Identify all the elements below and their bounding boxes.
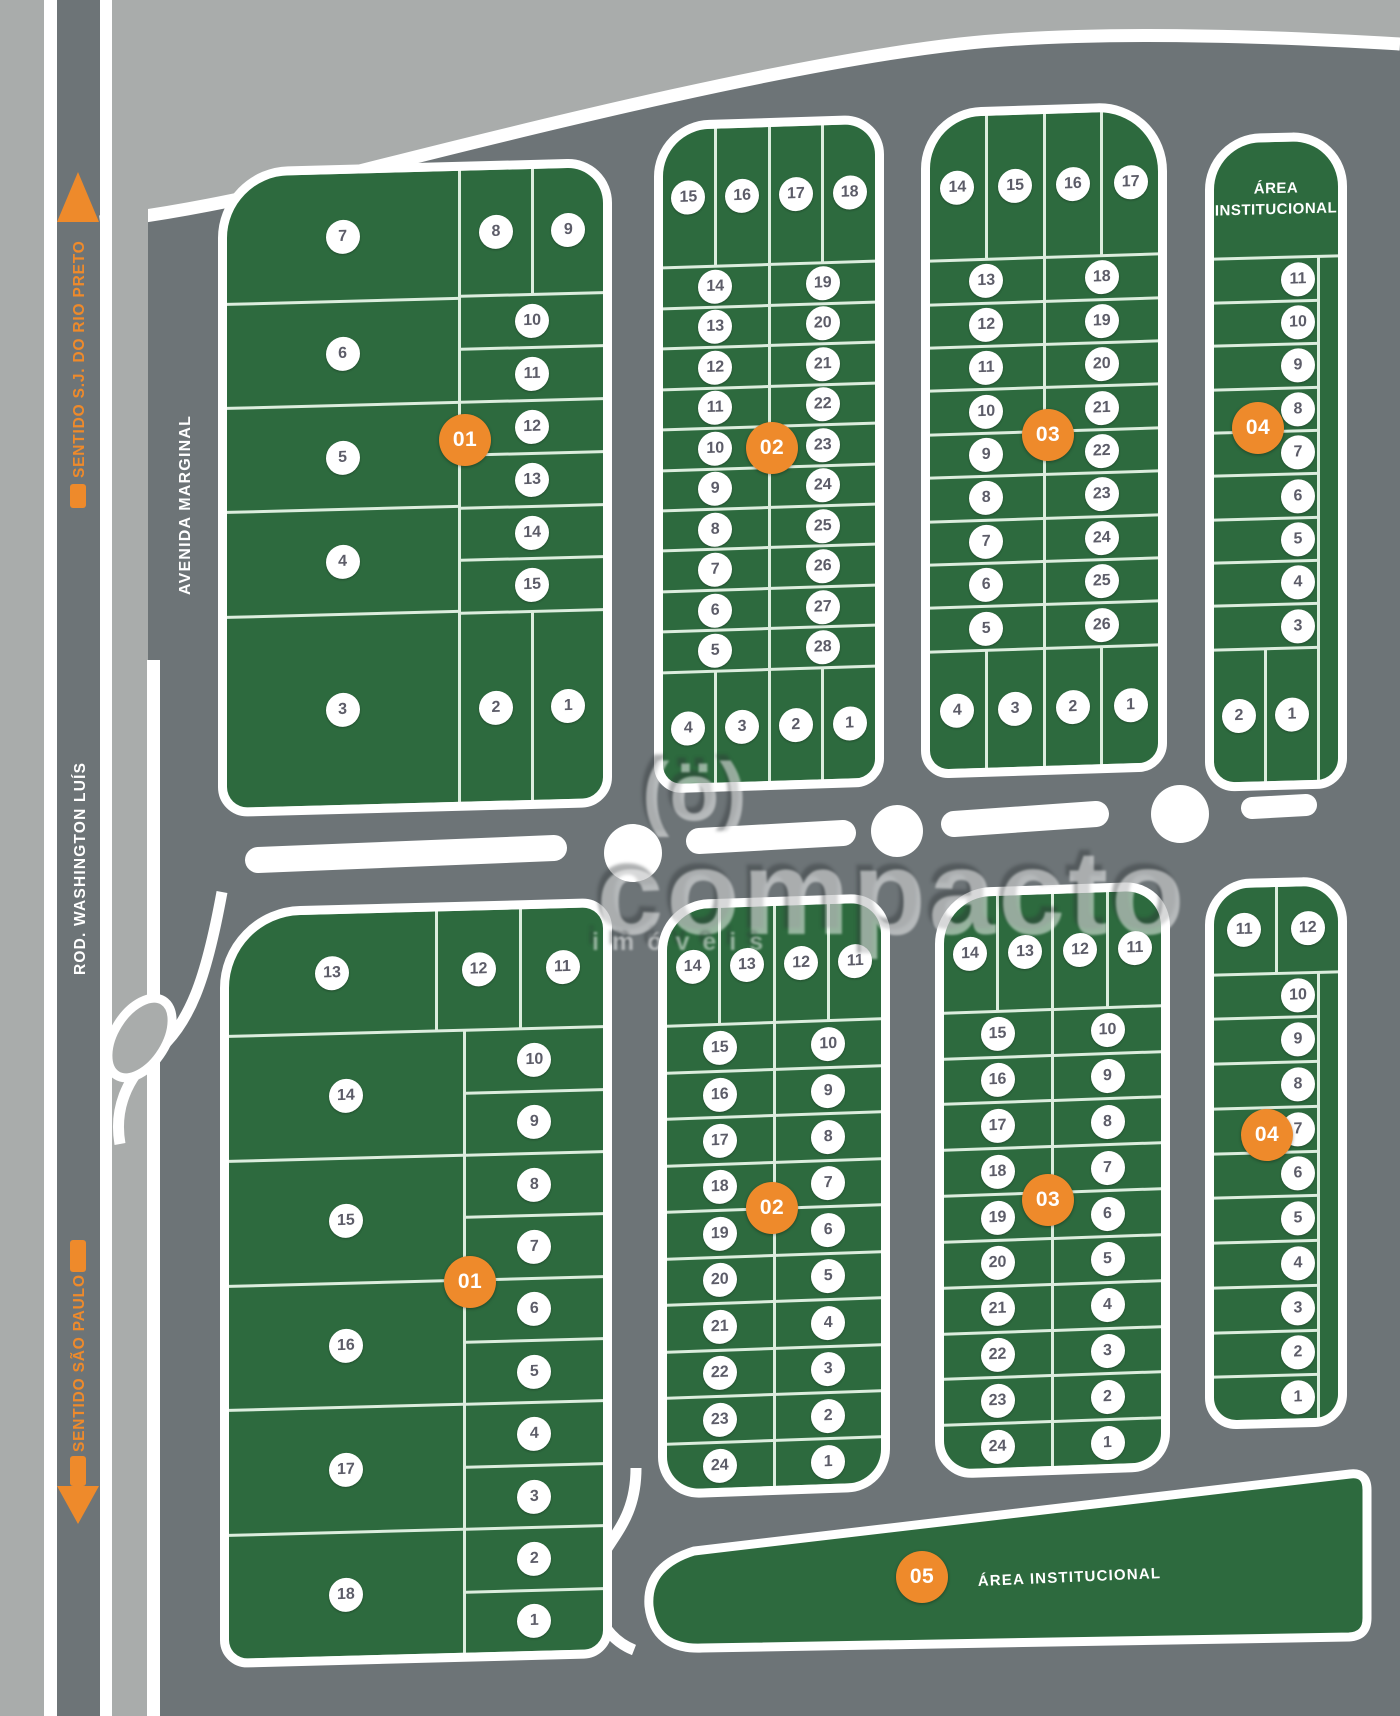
lot-number: 14 xyxy=(515,515,549,550)
lot-number: 3 xyxy=(998,691,1032,726)
lot-number: 8 xyxy=(517,1167,551,1202)
badge-quadra-01-lower: 01 xyxy=(444,1256,496,1308)
lot-24: 24 xyxy=(771,465,876,506)
lot-14: 14 xyxy=(229,1032,463,1160)
lot-16: 16 xyxy=(229,1282,463,1410)
lot-2: 2 xyxy=(1214,650,1264,783)
lot-number: 19 xyxy=(1085,303,1119,338)
lot-8: 8 xyxy=(466,1153,603,1216)
lot-number: 15 xyxy=(703,1030,737,1065)
lot-number: 19 xyxy=(806,266,840,301)
lot-number: 27 xyxy=(806,589,840,624)
lot-number: 7 xyxy=(811,1166,845,1201)
lot-6: 6 xyxy=(1214,475,1317,518)
lot-number: 4 xyxy=(1281,565,1315,600)
lot-number: 10 xyxy=(811,1027,845,1062)
highway-median-band xyxy=(112,0,148,1716)
lot-number: 11 xyxy=(698,390,732,425)
lot-26: 26 xyxy=(1046,603,1159,647)
lot-25: 25 xyxy=(771,506,876,547)
lot-22: 22 xyxy=(771,384,876,425)
lot-group: 4321 xyxy=(930,646,1158,769)
lot-number: 10 xyxy=(969,394,1003,429)
lot-16: 16 xyxy=(944,1057,1051,1104)
lot-number: 2 xyxy=(779,708,813,743)
lot-8: 8 xyxy=(1054,1099,1161,1146)
lot-number: 14 xyxy=(698,269,732,304)
lot-number: 6 xyxy=(969,567,1003,602)
lot-number: 5 xyxy=(1281,1201,1315,1236)
lot-22: 22 xyxy=(667,1350,773,1397)
lot-number: 26 xyxy=(1085,607,1119,642)
lot-13: 13 xyxy=(721,906,772,1023)
lot-group: 1516171819202122232410987654321 xyxy=(944,1007,1161,1470)
lot-number: 12 xyxy=(462,952,496,987)
lot-number: 13 xyxy=(1008,934,1042,969)
lot-1: 1 xyxy=(534,611,603,800)
lot-number: 21 xyxy=(981,1291,1015,1326)
badge-quadra-04-upper: 04 xyxy=(1232,402,1284,454)
lot-number: 11 xyxy=(546,950,580,985)
lot-number: 25 xyxy=(806,508,840,543)
lot-4: 4 xyxy=(227,508,458,615)
lot-28: 28 xyxy=(771,627,876,668)
quadra-04-upper: ÁREA INSTITUCIONAL1110987654321 xyxy=(1205,131,1347,792)
lot-10: 10 xyxy=(466,1028,603,1091)
lot-11: 11 xyxy=(663,388,768,429)
lot-5: 5 xyxy=(1214,1197,1317,1241)
lot-number: 9 xyxy=(1281,1022,1315,1057)
lot-number: 17 xyxy=(981,1108,1015,1143)
lot-9: 9 xyxy=(1214,345,1317,388)
lot-7: 7 xyxy=(930,520,1043,564)
lot-group: 8910111213141521 xyxy=(461,167,603,802)
lot-1: 1 xyxy=(1054,1419,1161,1466)
lot-number: 3 xyxy=(725,709,759,744)
badge-label: 04 xyxy=(1255,1123,1279,1147)
lot-number: 3 xyxy=(811,1352,845,1387)
lot-1: 1 xyxy=(1267,649,1317,782)
lot-1: 1 xyxy=(1103,646,1158,764)
lot-number: 28 xyxy=(806,630,840,665)
lot-number: 1 xyxy=(551,688,585,723)
lot-group: 14131211 xyxy=(667,902,881,1025)
arrow-up-shaft xyxy=(70,484,86,508)
lot-5: 5 xyxy=(227,404,458,511)
lot-17: 17 xyxy=(1103,110,1158,254)
lot-number: 4 xyxy=(1091,1288,1125,1323)
lot-16: 16 xyxy=(717,127,768,265)
lot-8: 8 xyxy=(930,476,1043,520)
lot-22: 22 xyxy=(944,1332,1051,1379)
lot-number: 17 xyxy=(703,1123,737,1158)
lot-17: 17 xyxy=(944,1103,1051,1150)
lot-16: 16 xyxy=(667,1071,773,1118)
lot-number: 23 xyxy=(806,428,840,463)
lot-number: 1 xyxy=(1281,1380,1315,1415)
lot-15: 15 xyxy=(667,1024,773,1071)
lot-number: 21 xyxy=(1085,390,1119,425)
lot-15: 15 xyxy=(461,559,603,613)
lot-8: 8 xyxy=(1214,1063,1317,1107)
lot-group: 15161718192021222324 xyxy=(944,1011,1051,1470)
lot-number: 10 xyxy=(1281,977,1315,1012)
lot-number: 6 xyxy=(517,1292,551,1327)
lot-13: 13 xyxy=(930,259,1043,303)
lot-8: 8 xyxy=(663,509,768,550)
lot-number: 7 xyxy=(969,524,1003,559)
lot-3: 3 xyxy=(776,1346,882,1393)
lot-20: 20 xyxy=(1046,342,1159,386)
lot-number: 6 xyxy=(1281,1156,1315,1191)
lot-number: 3 xyxy=(517,1479,551,1514)
lot-number: 1 xyxy=(1275,698,1309,733)
lot-number: 7 xyxy=(326,220,360,255)
badge-quadra-03-upper: 03 xyxy=(1022,409,1074,461)
badge-label: 02 xyxy=(760,1196,784,1220)
lot-number: 9 xyxy=(811,1073,845,1108)
lot-number: 18 xyxy=(329,1578,363,1613)
lot-number: 18 xyxy=(833,175,867,210)
arrow-down-shaft-top xyxy=(70,1240,86,1272)
lot-12: 12 xyxy=(776,904,827,1021)
lot-number: 19 xyxy=(703,1216,737,1251)
lot-12: 12 xyxy=(663,347,768,388)
lot-number: 15 xyxy=(671,180,705,215)
lot-21: 21 xyxy=(667,1303,773,1350)
median-bar-4 xyxy=(1252,805,1306,808)
lot-17: 17 xyxy=(667,1117,773,1164)
lot-11: 11 xyxy=(1214,887,1275,973)
quadra-01-upper: 765438910111213141521 xyxy=(218,158,612,817)
lot-number: 3 xyxy=(326,693,360,728)
lot-10: 10 xyxy=(776,1021,882,1068)
lot-2: 2 xyxy=(461,613,530,802)
lot-number: 2 xyxy=(479,690,513,725)
lot-2: 2 xyxy=(1054,1374,1161,1421)
lot-4: 4 xyxy=(1214,562,1317,605)
lot-number: 15 xyxy=(998,168,1032,203)
lot-number: 26 xyxy=(806,549,840,584)
label-avenida-marginal: AVENIDA MARGINAL xyxy=(177,415,194,595)
lot-23: 23 xyxy=(944,1377,1051,1424)
lot-number: 8 xyxy=(698,512,732,547)
lot-number: 20 xyxy=(806,306,840,341)
lot-2: 2 xyxy=(771,669,822,781)
lot-number: 8 xyxy=(479,215,513,250)
lot-1: 1 xyxy=(776,1439,882,1486)
badge-label: 01 xyxy=(458,1270,482,1294)
lot-4: 4 xyxy=(930,652,985,770)
lot-17: 17 xyxy=(771,125,822,263)
lot-number: 6 xyxy=(1091,1196,1125,1231)
lot-number: 20 xyxy=(703,1263,737,1298)
lot-13: 13 xyxy=(999,894,1051,1010)
lot-number: 21 xyxy=(806,347,840,382)
lot-number: 11 xyxy=(969,350,1003,385)
lot-25: 25 xyxy=(1046,559,1159,603)
lot-9: 9 xyxy=(1054,1053,1161,1100)
lot-group: 10987654321 xyxy=(1214,973,1338,1421)
lot-number: 8 xyxy=(1281,1067,1315,1102)
lot-number: 11 xyxy=(1118,930,1152,965)
lot-21: 21 xyxy=(944,1286,1051,1333)
lot-number: 8 xyxy=(811,1120,845,1155)
lot-7: 7 xyxy=(663,550,768,591)
lot-number: 14 xyxy=(329,1079,363,1114)
lot-4: 4 xyxy=(1054,1282,1161,1329)
lot-number: 7 xyxy=(698,552,732,587)
lot-number: 2 xyxy=(1281,1335,1315,1370)
lot-group: 1516171819202122232410987654321 xyxy=(667,1021,881,1490)
lot-group: 15161718 xyxy=(663,124,875,267)
lot-number: 2 xyxy=(1091,1379,1125,1414)
lot-11: 11 xyxy=(461,347,603,401)
lot-number: 1 xyxy=(517,1604,551,1639)
lot-number: 9 xyxy=(551,213,585,248)
lot-number: 8 xyxy=(1091,1104,1125,1139)
lot-4: 4 xyxy=(663,673,714,785)
lot-12: 12 xyxy=(1278,885,1339,971)
lot-3: 3 xyxy=(227,612,458,808)
lot-2: 2 xyxy=(466,1527,603,1590)
lot-8: 8 xyxy=(461,169,530,295)
lot-group: 21 xyxy=(1214,649,1317,783)
lot-18: 18 xyxy=(229,1531,463,1659)
lot-number: 9 xyxy=(517,1105,551,1140)
lot-number: 11 xyxy=(838,943,872,978)
lot-6: 6 xyxy=(227,300,458,407)
lot-5: 5 xyxy=(776,1253,882,1300)
lot-number: 17 xyxy=(779,177,813,212)
lot-9: 9 xyxy=(1214,1018,1317,1062)
lot-number: 11 xyxy=(1281,262,1315,297)
lot-number: 22 xyxy=(981,1337,1015,1372)
lot-12: 12 xyxy=(1054,892,1106,1008)
highway-edge-right xyxy=(100,0,112,1716)
lot-group: 141516171810987654321 xyxy=(229,1028,603,1659)
lot-group: 4321 xyxy=(663,668,875,785)
lot-13: 13 xyxy=(229,912,435,1036)
lot-4: 4 xyxy=(466,1403,603,1466)
lot-number: 16 xyxy=(329,1328,363,1363)
lot-number: 24 xyxy=(806,468,840,503)
roundabout-2 xyxy=(871,805,923,857)
lot-1: 1 xyxy=(824,668,875,780)
lot-1: 1 xyxy=(466,1590,603,1653)
lot-number: 5 xyxy=(811,1259,845,1294)
lot-21: 21 xyxy=(771,344,876,385)
lot-7: 7 xyxy=(227,171,458,303)
lot-number: 18 xyxy=(703,1170,737,1205)
lot-group: 1110987654321 xyxy=(1214,258,1338,783)
left-outer-band xyxy=(0,0,44,1716)
lot-14: 14 xyxy=(663,266,768,307)
badge-quadra-05: 05 xyxy=(896,1551,948,1603)
lot-number: 16 xyxy=(1056,167,1090,202)
lot-3: 3 xyxy=(466,1465,603,1528)
lot-number: 4 xyxy=(811,1305,845,1340)
label-sentido-rio-preto: SENTIDO S.J. DO RIO PRETO xyxy=(71,240,88,478)
arrow-down-shaft-bottom xyxy=(70,1456,86,1486)
lot-number: 22 xyxy=(806,387,840,422)
lot-16: 16 xyxy=(1046,112,1101,256)
badge-quadra-02-upper: 02 xyxy=(746,422,798,474)
lot-group: 15161718192021222324 xyxy=(667,1024,773,1489)
lot-20: 20 xyxy=(667,1257,773,1304)
lot-3: 3 xyxy=(1054,1328,1161,1375)
lot-11: 11 xyxy=(522,907,603,1027)
label-rod-washington-luis: ROD. WASHINGTON LUÍS xyxy=(72,762,89,975)
lot-5: 5 xyxy=(663,630,768,671)
lot-5: 5 xyxy=(1214,519,1317,562)
lot-number: 1 xyxy=(1114,688,1148,723)
lot-number: 15 xyxy=(329,1203,363,1238)
lot-number: 1 xyxy=(811,1445,845,1480)
lot-2: 2 xyxy=(1214,1331,1317,1375)
lot-number: 8 xyxy=(1281,392,1315,427)
lot-7: 7 xyxy=(1054,1144,1161,1191)
lot-10: 10 xyxy=(1214,974,1317,1018)
lot-11: 11 xyxy=(1109,890,1161,1006)
lot-24: 24 xyxy=(944,1423,1051,1470)
lot-23: 23 xyxy=(1046,473,1159,517)
lot-number: 24 xyxy=(981,1429,1015,1464)
badge-label: 03 xyxy=(1036,1188,1060,1212)
lot-3: 3 xyxy=(988,650,1043,768)
lot-number: 16 xyxy=(981,1062,1015,1097)
lot-group: 131211141516171810987654321 xyxy=(229,907,603,1659)
lot-14: 14 xyxy=(930,116,985,260)
lot-number: 15 xyxy=(515,568,549,603)
lot-number: 13 xyxy=(969,264,1003,299)
lot-number: 13 xyxy=(698,309,732,344)
lot-number: 22 xyxy=(1085,434,1119,469)
lot-number: 12 xyxy=(698,350,732,385)
badge-label: 04 xyxy=(1246,416,1270,440)
lot-24: 24 xyxy=(1046,516,1159,560)
lot-number: 12 xyxy=(1063,932,1097,967)
lot-24: 24 xyxy=(667,1443,773,1490)
lot-number: 17 xyxy=(1114,165,1148,200)
lot-4: 4 xyxy=(1214,1242,1317,1286)
lot-number: 7 xyxy=(1281,435,1315,470)
lot-group: 1312111098765 xyxy=(930,259,1043,650)
lot-number: 3 xyxy=(1281,609,1315,644)
lot-group: 10987654321 xyxy=(1214,974,1317,1421)
lot-number: 2 xyxy=(1222,699,1256,734)
badge-label: 05 xyxy=(910,1565,934,1589)
lot-12: 12 xyxy=(930,303,1043,347)
lot-group: 21 xyxy=(461,611,603,801)
badge-quadra-01-upper: 01 xyxy=(439,414,491,466)
lot-number: 10 xyxy=(1091,1013,1125,1048)
lot-number: 4 xyxy=(671,711,705,746)
lot-number: 17 xyxy=(329,1453,363,1488)
lot-20: 20 xyxy=(944,1240,1051,1287)
marginal-edge-line xyxy=(147,660,160,1716)
lot-number: 3 xyxy=(1281,1291,1315,1326)
lot-number: 24 xyxy=(1085,520,1119,555)
lot-11: 11 xyxy=(930,346,1043,390)
lot-group: 14131211 xyxy=(944,890,1161,1011)
lot-number: 5 xyxy=(517,1354,551,1389)
lot-19: 19 xyxy=(771,263,876,304)
lot-number: 4 xyxy=(326,544,360,579)
lot-number: 5 xyxy=(1091,1242,1125,1277)
lot-number: 14 xyxy=(676,949,710,984)
lot-number: 5 xyxy=(969,611,1003,646)
lot-number: 5 xyxy=(326,440,360,475)
lot-number: 6 xyxy=(698,593,732,628)
lot-number: 23 xyxy=(703,1402,737,1437)
lot-13: 13 xyxy=(461,453,603,507)
lot-number: 11 xyxy=(1227,913,1261,948)
badge-label: 03 xyxy=(1036,423,1060,447)
lot-10: 10 xyxy=(1214,302,1317,345)
lot-number: 2 xyxy=(517,1541,551,1576)
lot-number: 20 xyxy=(981,1246,1015,1281)
highway-edge-left xyxy=(44,0,57,1716)
lot-3: 3 xyxy=(1214,1287,1317,1331)
lot-number: 2 xyxy=(1056,689,1090,724)
lot-number: 23 xyxy=(981,1383,1015,1418)
lot-number: 5 xyxy=(698,633,732,668)
lot-14: 14 xyxy=(667,908,718,1025)
lot-18: 18 xyxy=(1046,256,1159,300)
lot-group: 10987654321 xyxy=(776,1021,882,1486)
lot-number: 8 xyxy=(969,481,1003,516)
lot-2: 2 xyxy=(1046,648,1101,766)
lot-1: 1 xyxy=(1214,1376,1317,1420)
lot-number: 9 xyxy=(1091,1059,1125,1094)
lot-15: 15 xyxy=(988,114,1043,258)
lot-5: 5 xyxy=(1054,1236,1161,1283)
lot-group: 76543 xyxy=(227,171,458,808)
lot-9: 9 xyxy=(776,1067,882,1114)
lot-number: 9 xyxy=(1281,348,1315,383)
label-sentido-sao-paulo: SENTIDO SÃO PAULO xyxy=(70,1274,88,1452)
lot-group: 765438910111213141521 xyxy=(227,167,603,808)
badge-quadra-03-lower: 03 xyxy=(1022,1174,1074,1226)
lot-number: 7 xyxy=(517,1230,551,1265)
lot-number: 24 xyxy=(703,1449,737,1484)
lot-number: 18 xyxy=(1085,260,1119,295)
median-bar-3 xyxy=(954,814,1096,824)
lot-10: 10 xyxy=(1054,1007,1161,1054)
quadra-01-lower: 131211141516171810987654321 xyxy=(220,898,612,1668)
lot-number: 16 xyxy=(725,178,759,213)
lot-number: 14 xyxy=(940,170,974,205)
lot-26: 26 xyxy=(771,546,876,587)
median-bar-2 xyxy=(699,833,843,841)
lot-number: 4 xyxy=(517,1417,551,1452)
area-institucional-label: ÁREA INSTITUCIONAL xyxy=(1214,140,1338,258)
lot-number: 7 xyxy=(1091,1150,1125,1185)
lot-5: 5 xyxy=(930,606,1043,650)
lot-number: 25 xyxy=(1085,564,1119,599)
lot-6: 6 xyxy=(663,590,768,631)
lot-number: 6 xyxy=(1281,479,1315,514)
lot-15: 15 xyxy=(944,1011,1051,1058)
lot-15: 15 xyxy=(663,129,714,267)
lot-group: 1112 xyxy=(1214,885,1338,973)
lot-11: 11 xyxy=(830,902,881,1019)
lot-number: 6 xyxy=(326,336,360,371)
lot-group: 10987654321 xyxy=(1054,1007,1161,1466)
lot-15: 15 xyxy=(229,1157,463,1285)
lot-23: 23 xyxy=(667,1396,773,1443)
